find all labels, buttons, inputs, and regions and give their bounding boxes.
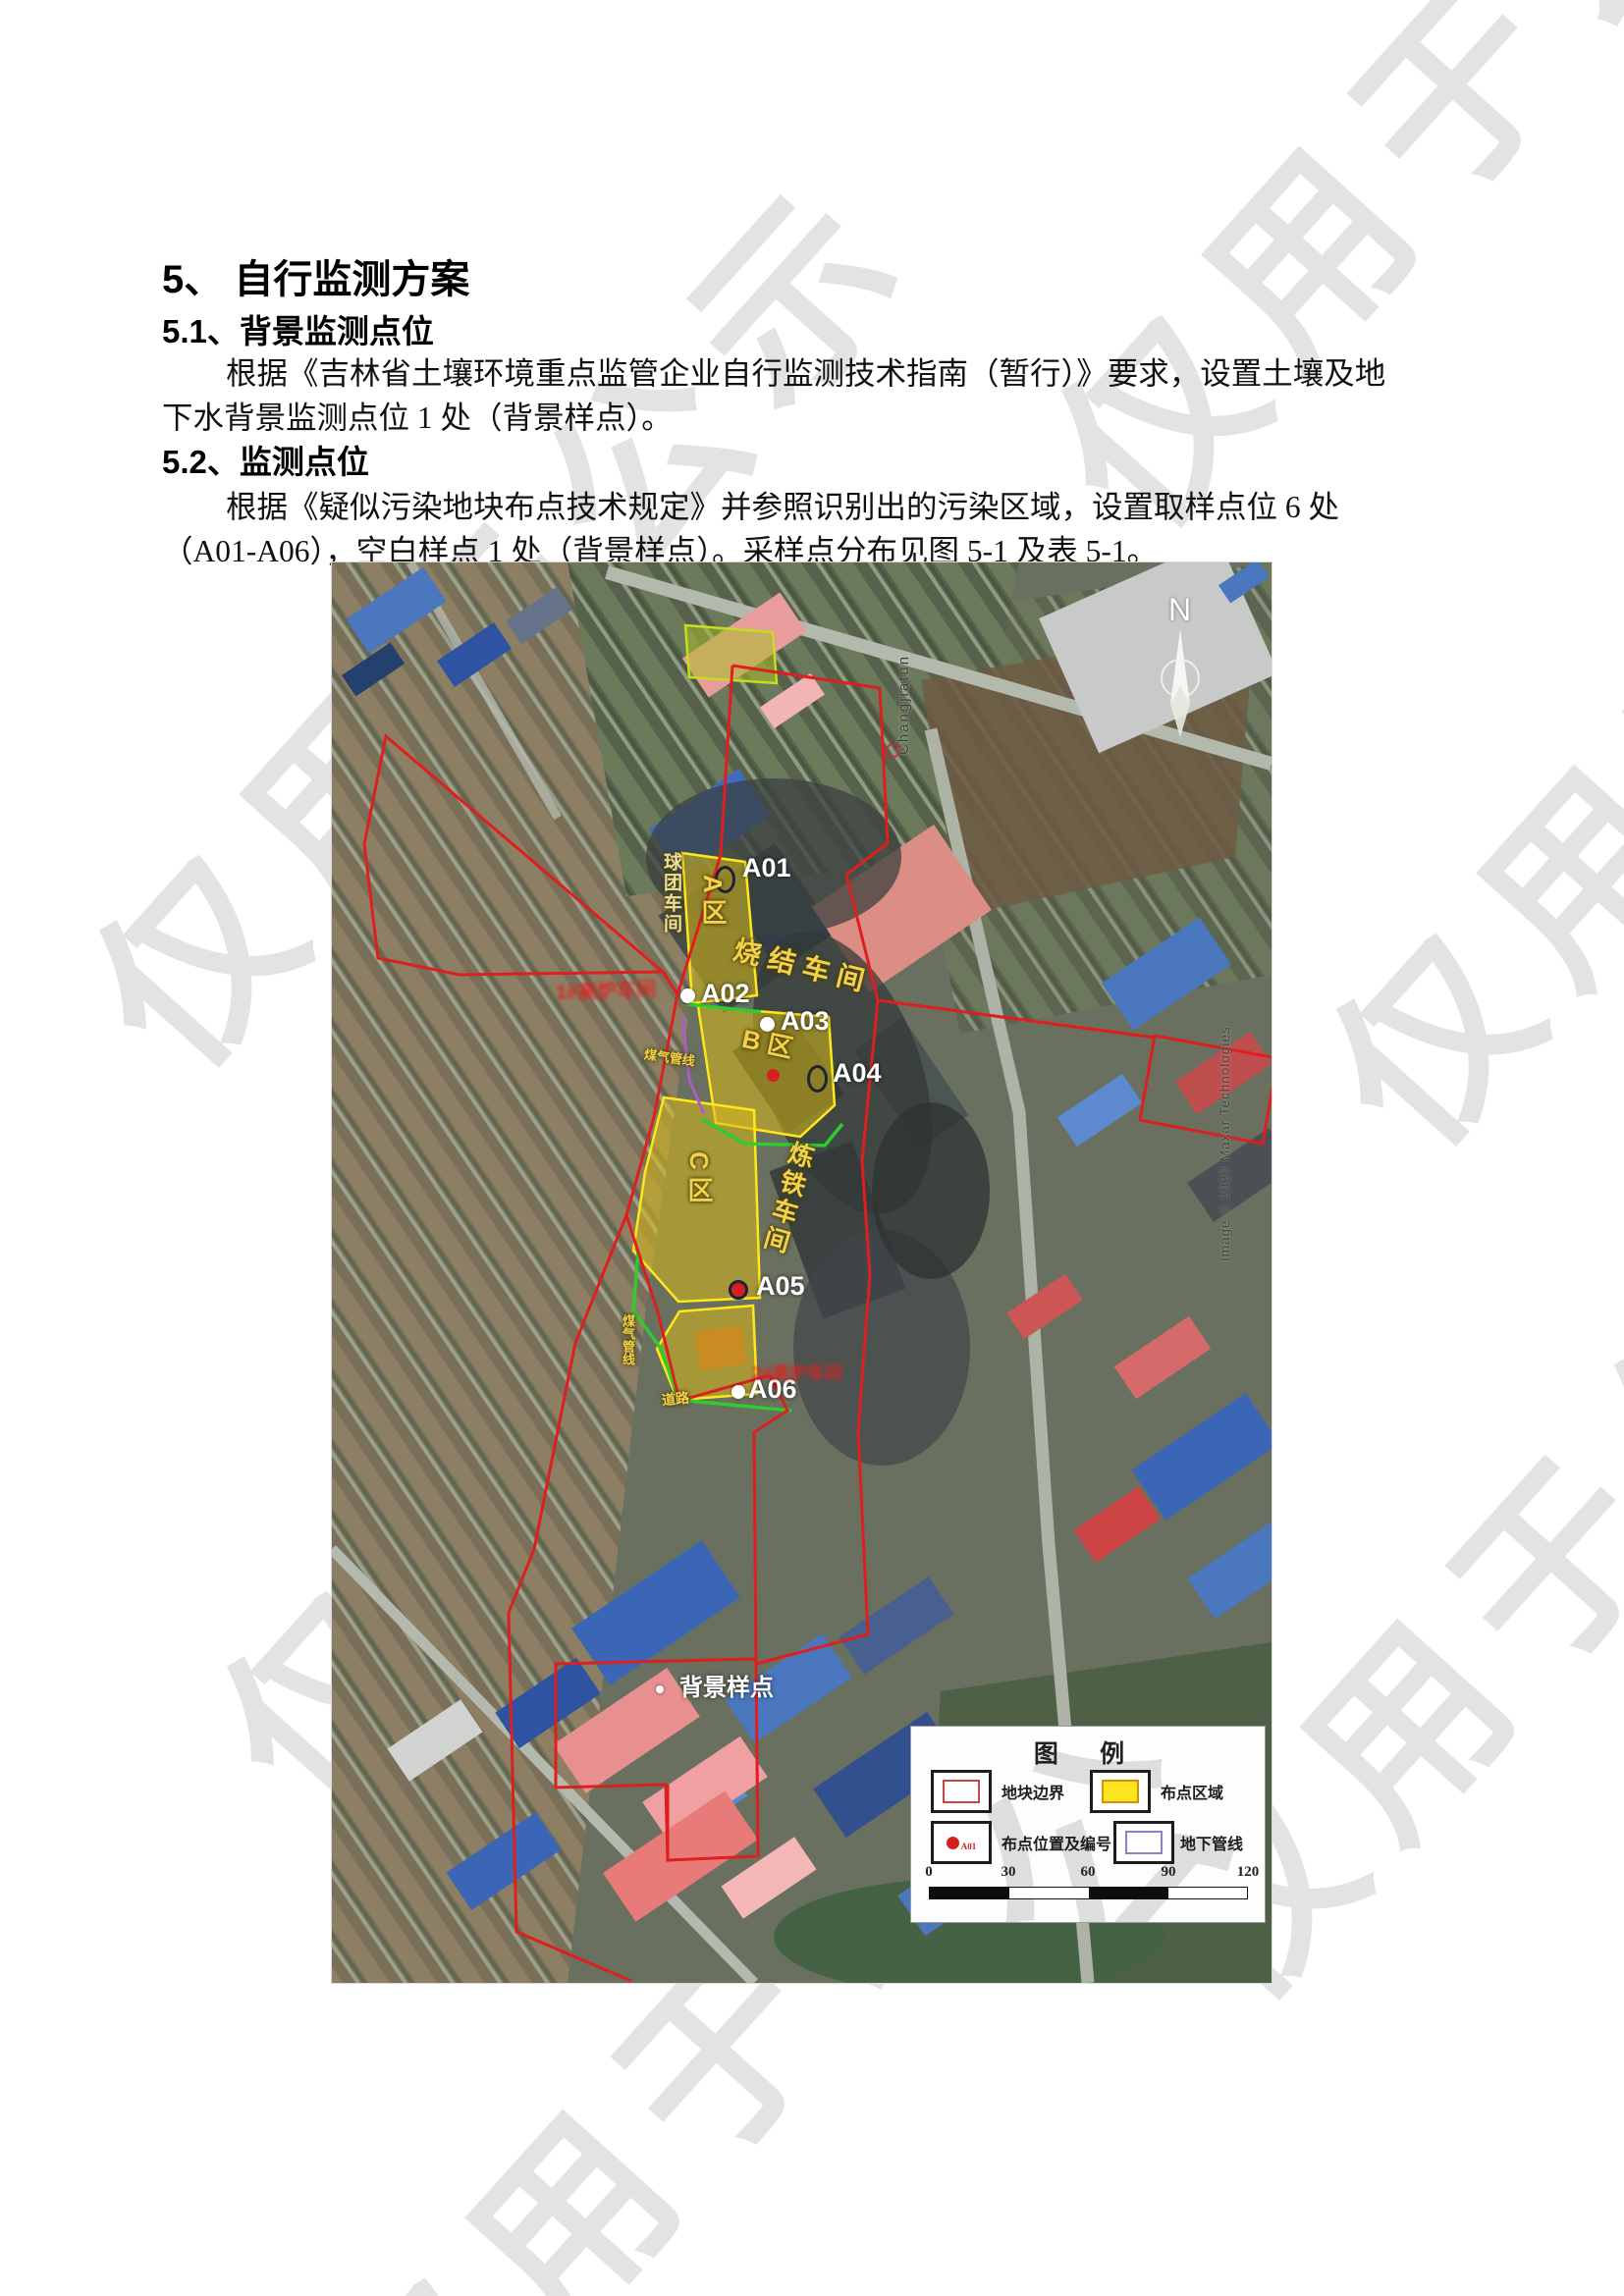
scale-tick: 30 (1001, 1864, 1016, 1881)
legend-item-label: 地块边界 (1001, 1780, 1064, 1803)
point-label-a05: A05 (756, 1271, 805, 1302)
north-label: N (1168, 592, 1191, 628)
scale-tick: 0 (925, 1864, 933, 1881)
legend-swatch-pipeline (1113, 1821, 1174, 1864)
paragraph-line: 下水背景监测点位 1 处（背景样点）。 (162, 393, 673, 438)
point-label-a01: A01 (742, 853, 791, 883)
site-map-figure: Changjiatun Image © 2020 Maxar Technolog… (332, 562, 1272, 1983)
pipeline-label-2: 煤气管线 (619, 1314, 637, 1365)
point-ring-a04 (807, 1065, 828, 1093)
legend-item-label: 地下管线 (1180, 1831, 1243, 1854)
legend-item-label: 布点位置及编号 (1001, 1831, 1111, 1854)
place-name-label: Changjiatun (895, 655, 912, 755)
north-arrow-icon (1159, 627, 1202, 743)
facility-label-pelletizing: 球团车间 (658, 852, 684, 934)
legend-swatch-zone (1090, 1770, 1151, 1813)
road-label: 道路 (661, 1388, 690, 1411)
scale-tick: 90 (1162, 1864, 1176, 1881)
place-marker-icon (886, 743, 900, 758)
scale-tick: 60 (1081, 1864, 1096, 1881)
red-annotation: 1#高炉车间 (556, 973, 657, 1005)
document-page: 仅用于公示 仅用于公示 仅用于公示 仅用于公示 仅用于公示 仅用于公示 5、 自… (0, 0, 1624, 2296)
legend-point-id: A01 (961, 1842, 977, 1851)
legend-item-label: 布点区域 (1161, 1780, 1223, 1803)
scale-bar (929, 1887, 1248, 1899)
section-heading: 5、 自行监测方案 (162, 247, 469, 304)
point-marker-a05 (729, 1280, 748, 1300)
point-label-a04: A04 (833, 1058, 882, 1089)
subsection-heading-5-2: 5.2、监测点位 (162, 436, 369, 483)
point-label-background: 背景样点 (679, 1668, 774, 1702)
watermark: 仅用于公示 (1257, 184, 1624, 1197)
point-label-a02: A02 (701, 979, 750, 1009)
legend-title: 图 例 (911, 1735, 1265, 1770)
point-marker-a06 (731, 1385, 745, 1399)
red-annotation: 2#高炉车间 (752, 1360, 842, 1385)
map-legend: 公 图 例 地块边界 布点区域 A01 布点位置及编号 地下管线 0 30 60 (910, 1726, 1266, 1923)
point-marker-a02 (680, 988, 695, 1003)
point-marker-background (656, 1685, 664, 1693)
point-marker-a04 (767, 1069, 780, 1082)
legend-swatch-boundary (931, 1770, 992, 1813)
scale-tick: 120 (1237, 1864, 1260, 1881)
zone-label-c: C 区 (681, 1151, 718, 1202)
legend-swatch-point: A01 (931, 1821, 992, 1864)
paragraph-line: 根据《疑似污染地块布点技术规定》并参照识别出的污染区域，设置取样点位 6 处 (226, 482, 1339, 527)
subsection-heading-5-1: 5.1、背景监测点位 (162, 305, 434, 352)
imagery-attribution: Image © 2020 Maxar Technologies (1218, 1026, 1232, 1261)
paragraph-line: 根据《吉林省土壤环境重点监管企业自行监测技术指南（暂行）》要求，设置土壤及地 (226, 348, 1385, 394)
zone-label-a: A 区 (695, 875, 731, 925)
